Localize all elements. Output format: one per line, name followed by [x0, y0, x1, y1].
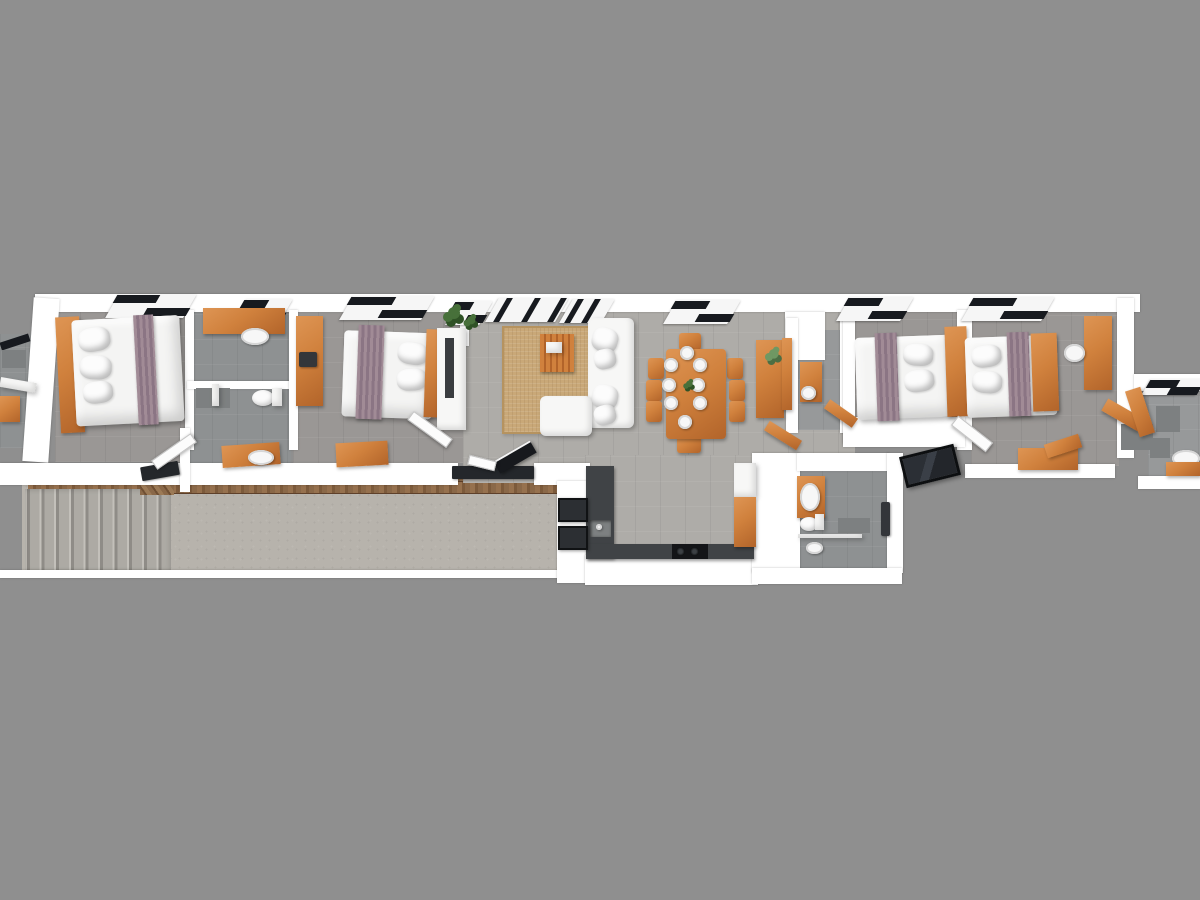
wall-far-right-bottom: [1138, 476, 1200, 489]
console-flowers: [765, 353, 773, 361]
window-bedroom-3: [843, 297, 907, 321]
bed-2-runner: [355, 325, 384, 420]
outdoor-unit: [558, 498, 588, 522]
entry-glass-mat: [899, 444, 961, 489]
dining-chair-left: [646, 401, 662, 422]
floor-mat-left: [2, 350, 26, 368]
plant-on-cabinet: [443, 312, 453, 322]
window-frame-bar: [1166, 387, 1200, 395]
shower-mat-rear: [838, 518, 870, 533]
table-centerpiece: [683, 383, 689, 389]
console-side: [782, 338, 792, 410]
dining-chair-right: [729, 401, 745, 422]
bed-4: [964, 328, 1079, 422]
bed-4-pillow: [971, 370, 1002, 394]
wall-bath-rear-top: [797, 453, 889, 471]
plate: [662, 378, 676, 392]
plate: [680, 346, 694, 360]
window-frame-bar: [999, 311, 1048, 319]
burner: [676, 547, 685, 556]
window-frame-bar: [969, 298, 1018, 306]
dining-chair-left: [646, 380, 662, 401]
vanity-left-edge: [0, 396, 20, 422]
terrace-bottom-edge: [0, 570, 562, 578]
bed-4-runner: [1007, 332, 1032, 417]
sofa: [540, 313, 636, 433]
window-bedroom-2: [346, 296, 428, 320]
wall-kitchen-bottom: [585, 555, 758, 585]
bed-4-headboard: [1031, 333, 1060, 412]
window-frame-bar: [868, 311, 908, 319]
window-frame-bar: [240, 300, 270, 308]
kitchen-faucet: [596, 524, 602, 530]
wall-kitchen-bath: [752, 453, 800, 573]
dining-chair-left: [648, 358, 664, 379]
burner: [690, 547, 699, 556]
bed-3-pillow: [903, 343, 934, 367]
toilet-ensuite: [252, 390, 274, 406]
kitchen-counter-bottom: [586, 544, 754, 559]
ensuite-sink: [241, 328, 269, 345]
bath-right-mat: [1156, 406, 1180, 432]
window-bedroom-4: [968, 297, 1048, 321]
wall-bath-rear-bottom: [752, 568, 902, 584]
plate: [678, 415, 692, 429]
kitchen-wood-cabinet: [734, 497, 756, 547]
staircase: [25, 489, 171, 572]
dining-chair-right: [727, 358, 743, 379]
tv-screen: [445, 338, 454, 398]
window-frame-bar: [670, 301, 710, 309]
lower-bath-sink: [248, 450, 274, 465]
bath-rear-sink: [800, 483, 820, 511]
bath-rear-door: [881, 502, 890, 536]
plant-small: [464, 320, 471, 327]
bed-3-runner: [875, 333, 900, 422]
console-sideboard: [756, 340, 784, 418]
window-frame-bar: [843, 298, 883, 306]
plate: [664, 358, 678, 372]
desk-chair-bedroom-2: [299, 352, 317, 367]
bed-2: [341, 324, 446, 424]
bath-rear-toilet-tank: [815, 514, 824, 530]
window-far-right: [1146, 379, 1200, 395]
window-frame-bar: [378, 310, 428, 318]
tall-cabinet-fridge: [734, 463, 756, 497]
shower-glass-screen: [798, 534, 862, 538]
outdoor-unit: [558, 526, 588, 550]
bed-2-pillow: [396, 368, 427, 392]
bath-right-vanity: [1166, 462, 1200, 476]
sofa-chaise: [540, 396, 592, 436]
bath-right-mat-2: [1150, 438, 1170, 458]
window-frame-bar: [695, 314, 735, 322]
dining-chair-right: [729, 380, 745, 401]
wardrobe-bedroom-4: [1084, 316, 1112, 390]
toilet-tank-ensuite: [272, 388, 282, 406]
window-dining: [670, 300, 734, 324]
plate: [693, 358, 707, 372]
plate: [693, 396, 707, 410]
window-frame-bar: [113, 295, 161, 303]
desk-bedroom-2: [335, 441, 388, 468]
shower-drain: [806, 542, 823, 554]
bed-1-pillow: [79, 355, 112, 380]
floor-plan-render: [0, 0, 1200, 900]
shower-column: [212, 384, 219, 406]
bed-3: [854, 326, 971, 424]
bed-1: [55, 309, 191, 436]
plate: [691, 378, 705, 392]
powder-sink: [801, 386, 816, 400]
stool-bedroom-4: [1064, 344, 1085, 362]
window-frame-bar: [347, 297, 397, 305]
plate: [664, 396, 678, 410]
